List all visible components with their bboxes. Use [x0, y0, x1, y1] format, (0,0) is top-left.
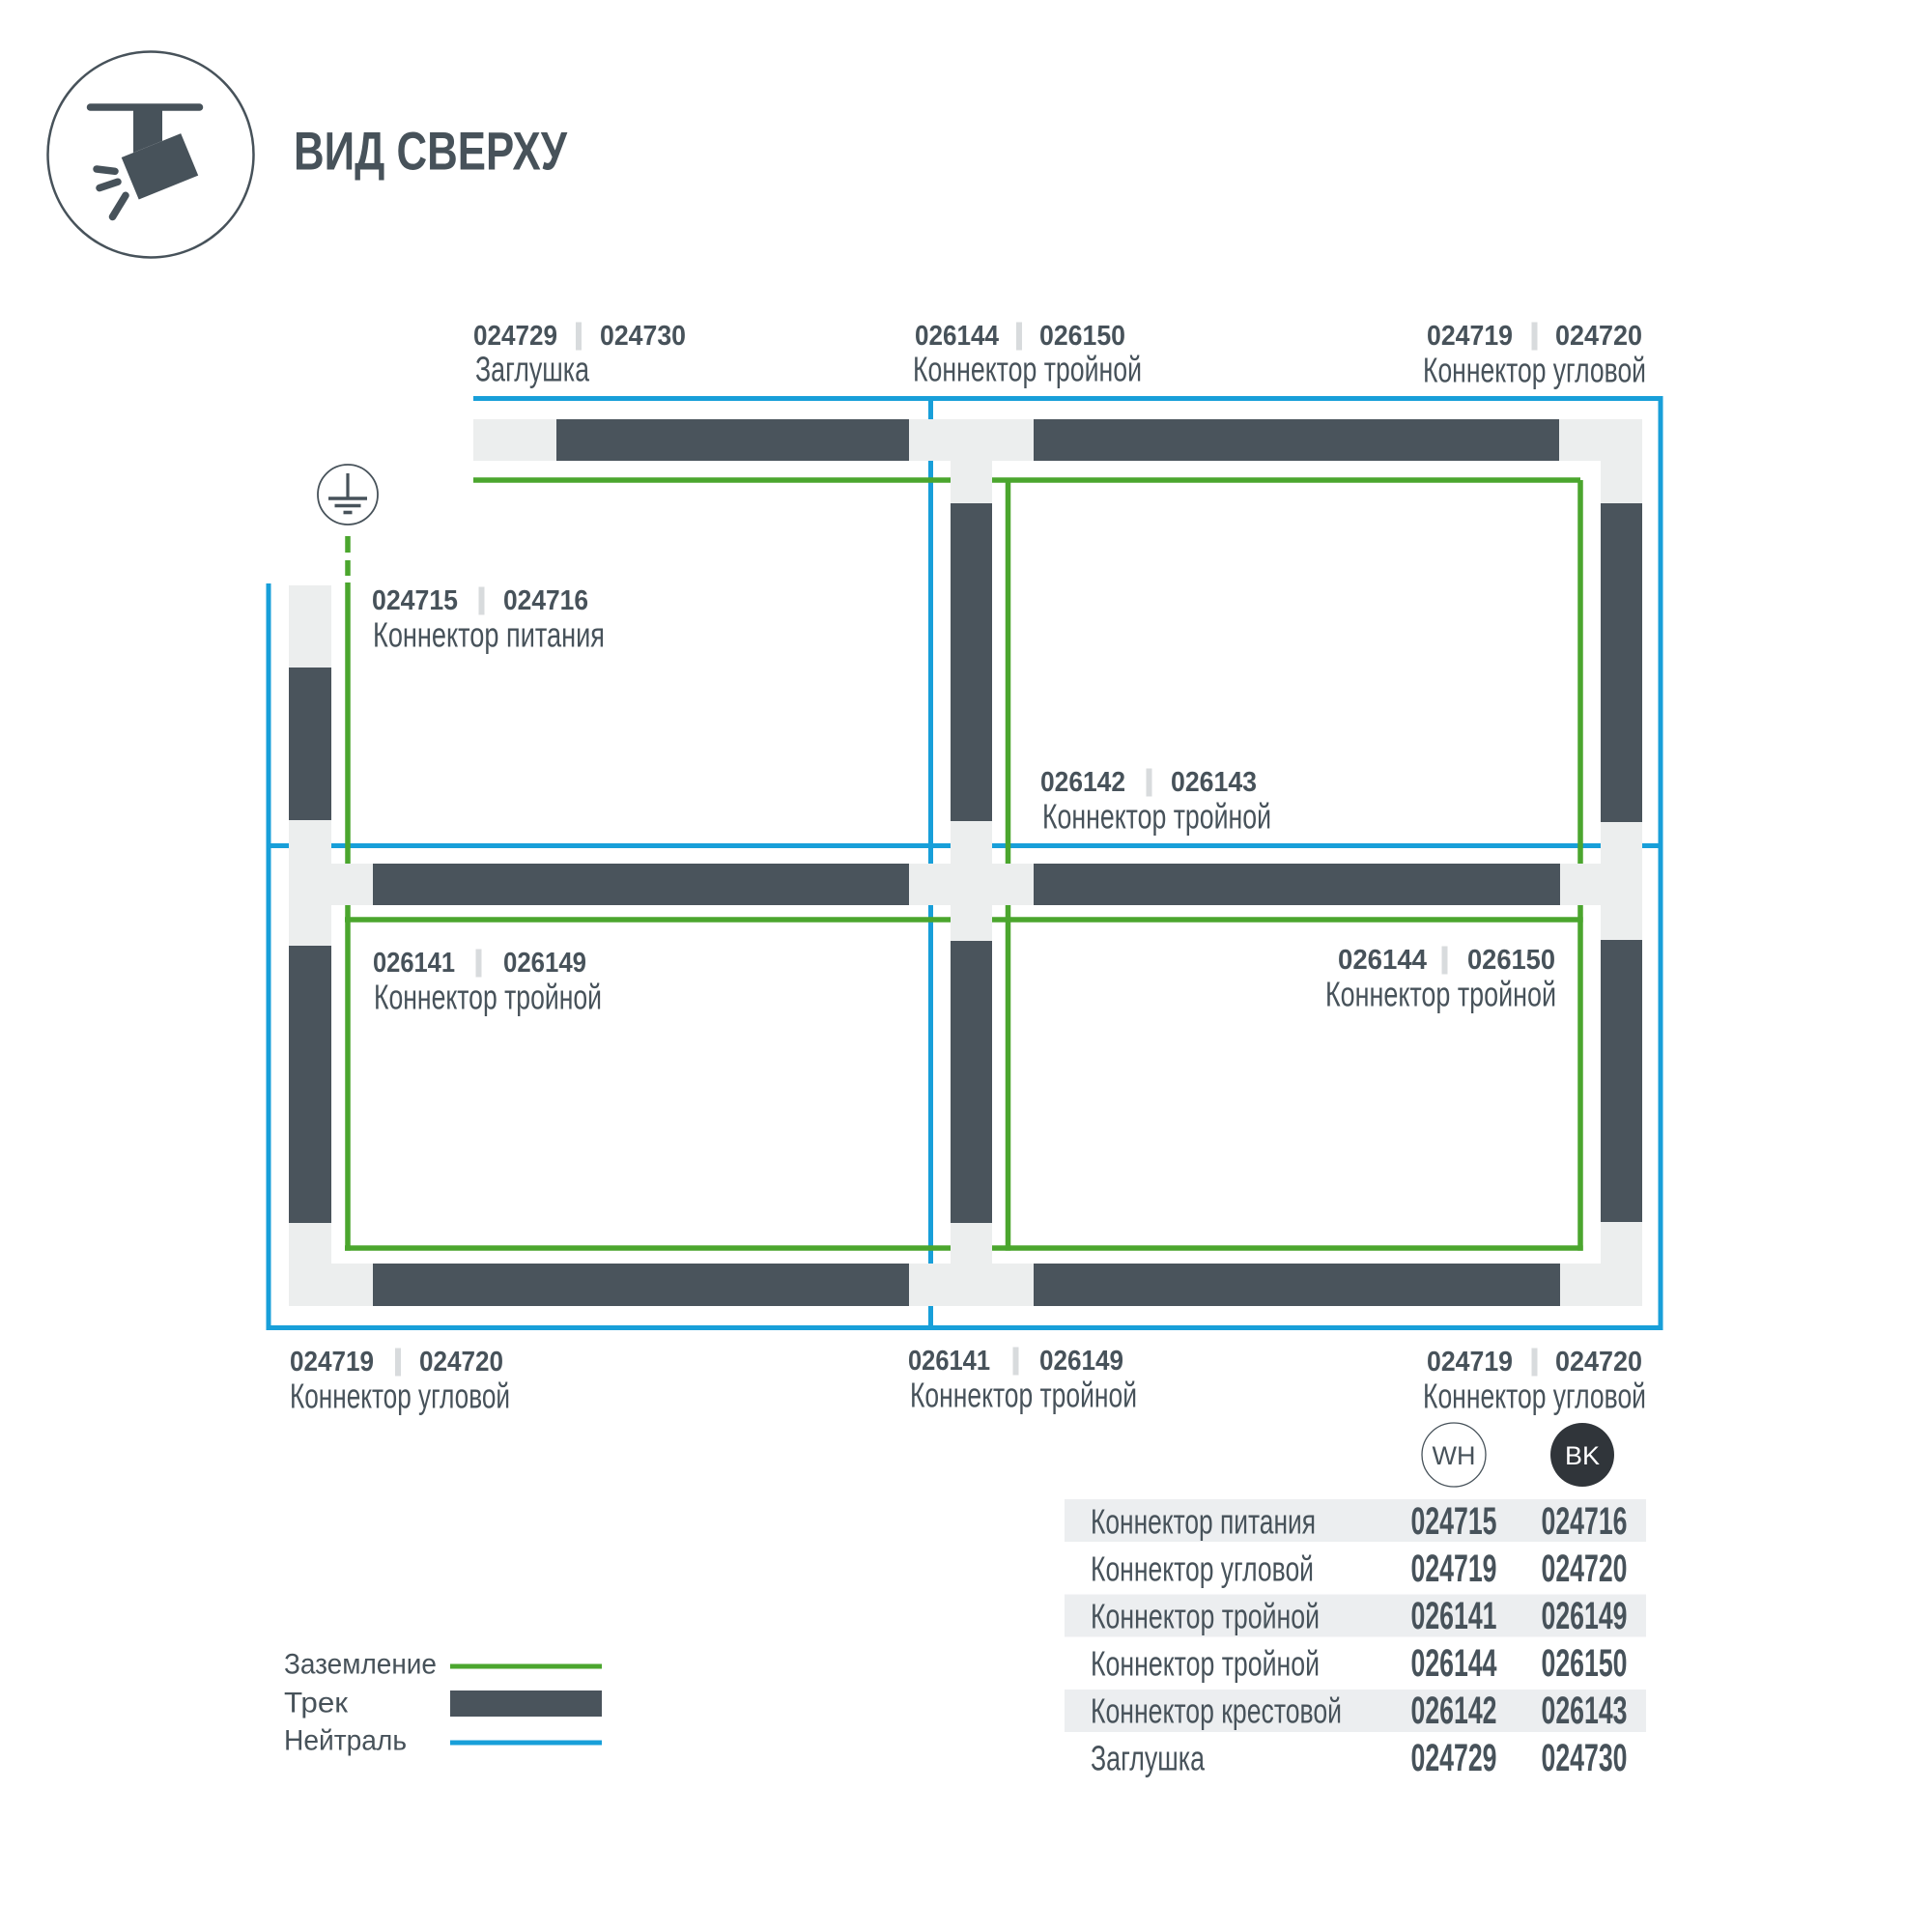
- svg-text:024730: 024730: [600, 321, 686, 352]
- svg-text:024730: 024730: [1542, 1737, 1628, 1779]
- svg-text:026142: 026142: [1411, 1690, 1497, 1732]
- svg-text:026141: 026141: [1411, 1595, 1497, 1637]
- svg-text:Коннектор тройной: Коннектор тройной: [1325, 975, 1556, 1014]
- svg-text:024720: 024720: [419, 1347, 503, 1378]
- svg-text:024719: 024719: [290, 1347, 374, 1378]
- svg-text:BK: BK: [1565, 1441, 1600, 1470]
- svg-text:026149: 026149: [1039, 1346, 1123, 1377]
- svg-text:024729: 024729: [1411, 1737, 1497, 1779]
- svg-text:024715: 024715: [1411, 1500, 1497, 1543]
- svg-text:Заглушка: Заглушка: [1091, 1739, 1206, 1778]
- svg-text:026143: 026143: [1171, 767, 1257, 798]
- svg-text:Коннектор тройной: Коннектор тройной: [910, 1376, 1137, 1415]
- svg-text:026150: 026150: [1542, 1642, 1628, 1685]
- svg-text:Нейтраль: Нейтраль: [284, 1725, 407, 1757]
- svg-text:026144: 026144: [1411, 1642, 1497, 1685]
- svg-text:Коннектор тройной: Коннектор тройной: [1042, 797, 1271, 837]
- svg-text:026144: 026144: [1338, 945, 1427, 976]
- svg-text:026143: 026143: [1542, 1690, 1628, 1732]
- svg-text:024720: 024720: [1555, 1347, 1642, 1378]
- svg-text:026141: 026141: [908, 1346, 990, 1377]
- svg-text:026150: 026150: [1467, 945, 1555, 976]
- svg-text:024719: 024719: [1427, 321, 1513, 352]
- svg-text:Заглушка: Заглушка: [475, 350, 590, 389]
- svg-text:026149: 026149: [503, 948, 586, 979]
- svg-text:026144: 026144: [915, 321, 999, 352]
- svg-text:026142: 026142: [1040, 767, 1125, 798]
- svg-text:Коннектор крестовой: Коннектор крестовой: [1091, 1691, 1342, 1731]
- svg-text:Коннектор питания: Коннектор питания: [373, 615, 605, 655]
- svg-text:Коннектор угловой: Коннектор угловой: [1423, 1377, 1646, 1416]
- svg-text:026150: 026150: [1039, 321, 1125, 352]
- svg-text:WH: WH: [1433, 1441, 1476, 1470]
- svg-text:Коннектор тройной: Коннектор тройной: [1091, 1597, 1320, 1636]
- svg-text:024716: 024716: [1542, 1500, 1628, 1543]
- svg-text:Коннектор тройной: Коннектор тройной: [913, 350, 1142, 389]
- svg-text:024716: 024716: [503, 585, 588, 616]
- svg-text:024720: 024720: [1555, 321, 1642, 352]
- svg-text:026141: 026141: [373, 948, 455, 979]
- svg-text:Трек: Трек: [284, 1688, 349, 1719]
- svg-text:ВИД СВЕРХУ: ВИД СВЕРХУ: [294, 121, 568, 182]
- svg-text:Коннектор угловой: Коннектор угловой: [1091, 1549, 1314, 1589]
- svg-text:026149: 026149: [1542, 1595, 1628, 1637]
- svg-text:024720: 024720: [1542, 1548, 1628, 1590]
- svg-text:024729: 024729: [473, 321, 557, 352]
- svg-text:Коннектор тройной: Коннектор тройной: [1091, 1644, 1320, 1684]
- svg-text:024715: 024715: [372, 585, 458, 616]
- svg-text:Коннектор угловой: Коннектор угловой: [290, 1377, 510, 1416]
- svg-text:Коннектор питания: Коннектор питания: [1091, 1502, 1316, 1542]
- svg-text:Коннектор тройной: Коннектор тройной: [374, 978, 602, 1017]
- svg-text:024719: 024719: [1411, 1548, 1497, 1590]
- svg-text:Заземление: Заземление: [284, 1649, 437, 1681]
- svg-text:024719: 024719: [1427, 1347, 1513, 1378]
- svg-text:Коннектор угловой: Коннектор угловой: [1423, 351, 1646, 390]
